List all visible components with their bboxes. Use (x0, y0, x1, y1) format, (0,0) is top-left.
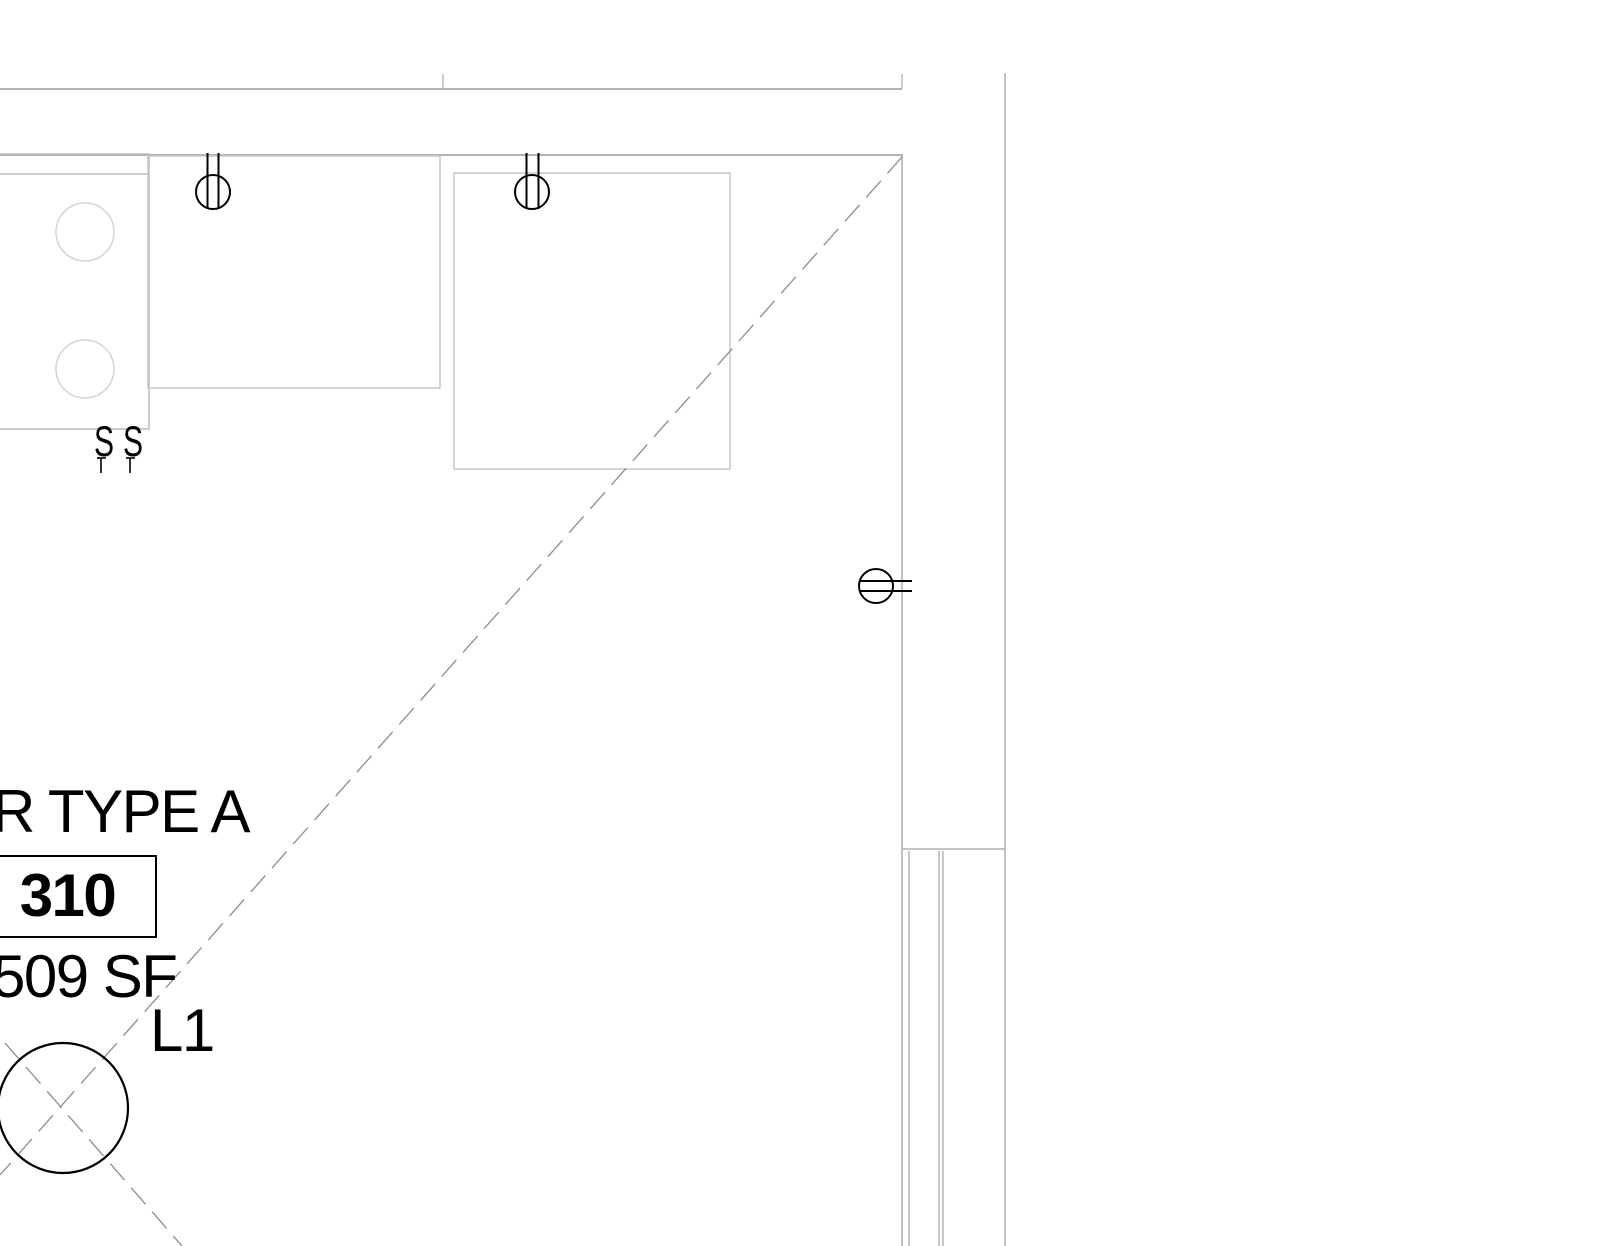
appliance-outline (0, 154, 149, 429)
floor-plan-canvas: S S R TYPE A 310 509 SF L1 (0, 0, 1608, 1246)
cabinet-left (148, 156, 440, 388)
wall-light-circle (196, 175, 230, 209)
room-type-label: R TYPE A (0, 782, 249, 842)
switch-icon: S (94, 418, 114, 473)
wall-sconce-circle (859, 569, 893, 603)
appliance-cooktop (0, 154, 149, 429)
cabinets (148, 156, 730, 469)
dashed-diagonal-cross (5, 1043, 182, 1246)
wall-lines (0, 73, 1005, 1246)
cabinet-right (454, 173, 730, 469)
window-frame-lines (909, 851, 943, 1246)
light-fixture-label: L1 (150, 1001, 214, 1061)
wall-sconce-icon (859, 569, 912, 603)
wall-light-icon (515, 153, 549, 209)
dashed-diagonal-main (0, 157, 902, 1175)
room-number-label: 310 (0, 866, 157, 926)
dashed-reference-lines (0, 157, 902, 1246)
switch-icon: S (123, 418, 143, 473)
wall-light-circle (515, 175, 549, 209)
floor-plan-linework: S S (0, 0, 1608, 1246)
burner-circle-bottom (56, 340, 114, 398)
burner-circle-top (56, 203, 114, 261)
wall-light-icon (196, 153, 230, 209)
